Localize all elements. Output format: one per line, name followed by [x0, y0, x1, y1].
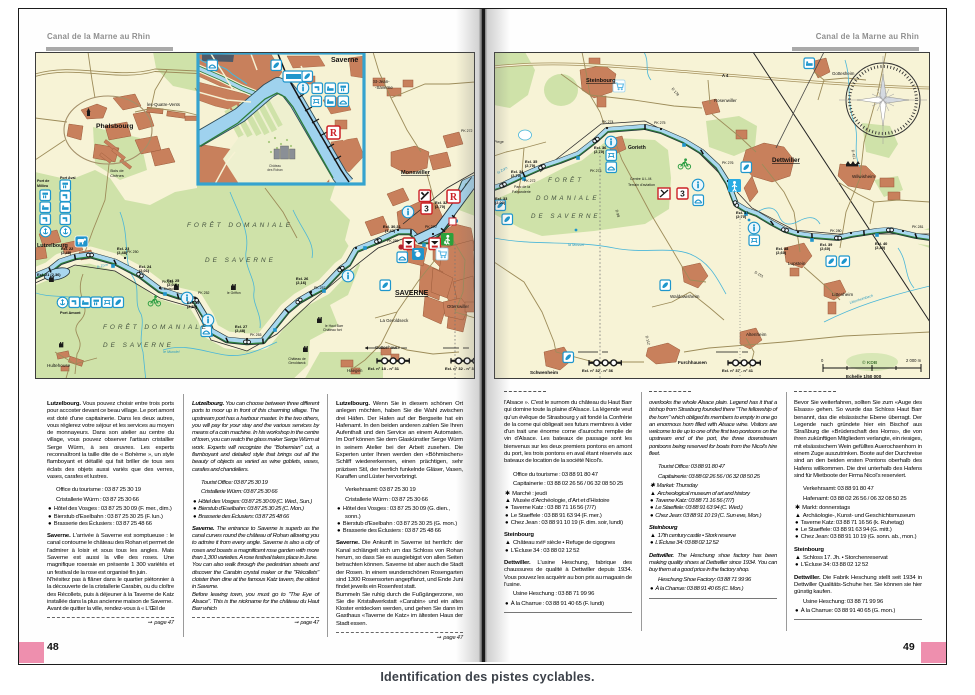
svg-text:Port Aval: Port Aval: [60, 176, 76, 180]
svg-text:Parc de la: Parc de la: [514, 185, 530, 189]
svg-text:D 151: D 151: [754, 270, 764, 278]
svg-text:(2,40): (2,40): [875, 245, 886, 250]
svg-text:Monswiller: Monswiller: [401, 170, 431, 176]
svg-text:DOMANIALE: DOMANIALE: [536, 195, 599, 202]
svg-text:Dettwiller: Dettwiller: [772, 157, 800, 164]
svg-text:Steinbourg: Steinbourg: [586, 78, 616, 84]
svg-text:FORÊT DOMANIALE: FORÊT DOMANIALE: [103, 322, 209, 331]
svg-text:(2,16): (2,16): [296, 280, 307, 285]
svg-text:FORÊT DOMANIALE: FORÊT DOMANIALE: [187, 220, 293, 229]
svg-text:Chênes: Chênes: [110, 173, 124, 178]
svg-text:la Mossel: la Mossel: [568, 243, 584, 247]
svg-text:le Griffon: le Griffon: [227, 291, 241, 295]
svg-text:(2,60): (2,60): [776, 250, 787, 255]
svg-text:(1,43): (1,43): [385, 228, 396, 233]
svg-text:D 112: D 112: [645, 335, 651, 345]
svg-text:DE SAVERNE: DE SAVERNE: [103, 342, 174, 349]
svg-text:PK 257: PK 257: [314, 286, 326, 290]
svg-text:Ecl. n° 37 - n° 41: Ecl. n° 37 - n° 41: [722, 368, 754, 373]
svg-text:DE SAVERNE: DE SAVERNE: [205, 257, 276, 264]
svg-text:Centre U.L.M.: Centre U.L.M.: [630, 177, 652, 181]
svg-text:Gottesheim: Gottesheim: [832, 71, 855, 76]
svg-text:le Mundel: le Mundel: [163, 350, 180, 354]
svg-text:(2,70): (2,70): [525, 163, 536, 168]
svg-text:PK 253: PK 253: [250, 333, 262, 337]
svg-text:A 4: A 4: [722, 73, 729, 78]
svg-text:(2,55): (2,55): [187, 304, 198, 309]
svg-text:PK 270: PK 270: [425, 225, 437, 229]
svg-text:Ecl. n° 18 - n° 31: Ecl. n° 18 - n° 31: [368, 366, 400, 371]
svg-text:(2,01): (2,01): [139, 268, 150, 273]
svg-text:Rosenwiller: Rosenwiller: [714, 98, 737, 103]
svg-text:Phalsbourg: Phalsbourg: [96, 123, 133, 130]
svg-text:PK 250: PK 250: [127, 250, 139, 254]
svg-text:Waldowisheim: Waldowisheim: [670, 294, 700, 299]
svg-text:Saverne: Saverne: [331, 57, 358, 64]
svg-text:PK 276: PK 276: [722, 161, 734, 165]
svg-text:0: 0: [821, 358, 824, 363]
svg-text:PK 273: PK 273: [590, 169, 602, 173]
svg-text:Hultehouse: Hultehouse: [47, 363, 71, 368]
svg-text:Port de: Port de: [37, 179, 49, 183]
svg-text:Faisanderie: Faisanderie: [512, 190, 531, 194]
svg-text:D 421: D 421: [851, 150, 857, 160]
svg-text:Ecl. 21 (2,36): Ecl. 21 (2,36): [37, 272, 61, 277]
svg-text:SAVERNE: SAVERNE: [395, 290, 429, 297]
svg-text:D 178: D 178: [671, 87, 680, 97]
svg-text:Lupstein: Lupstein: [788, 261, 806, 266]
svg-text:Port Amont: Port Amont: [60, 311, 81, 315]
svg-text:2 000 m: 2 000 m: [906, 358, 922, 363]
svg-text:Furchhausen: Furchhausen: [678, 360, 707, 365]
svg-text:des Rohan: des Rohan: [267, 168, 283, 172]
svg-text:les-Quatre-Vents: les-Quatre-Vents: [147, 102, 181, 107]
svg-text:PK 252: PK 252: [198, 291, 210, 295]
svg-text:(2,48): (2,48): [61, 250, 72, 255]
svg-text:Schwenheim: Schwenheim: [530, 370, 558, 375]
svg-text:PK 274: PK 274: [602, 120, 614, 124]
svg-text:La Geroldseck: La Geroldseck: [380, 318, 409, 323]
svg-text:(2,70): (2,70): [736, 214, 747, 219]
svg-text:-Saverne: -Saverne: [375, 85, 393, 90]
svg-text:Terrain d'aviation: Terrain d'aviation: [628, 183, 655, 187]
svg-text:Gottenhouse: Gottenhouse: [375, 345, 401, 350]
svg-text:© KDB: © KDB: [862, 359, 878, 366]
svg-text:St-Jean-: St-Jean-: [373, 79, 390, 84]
svg-text:(2,48): (2,48): [235, 328, 246, 333]
svg-text:Wilwisheim: Wilwisheim: [852, 174, 875, 179]
svg-text:Haegen: Haegen: [347, 368, 363, 373]
svg-text:Geroldseck: Geroldseck: [288, 361, 305, 365]
svg-text:Ecl. n° 32 - n° 36: Ecl. n° 32 - n° 36: [582, 368, 614, 373]
svg-text:PK 272: PK 272: [524, 179, 536, 183]
svg-text:Littenheim: Littenheim: [832, 292, 853, 297]
svg-text:DE SAVERNE: DE SAVERNE: [531, 213, 601, 220]
svg-text:(2,70): (2,70): [435, 204, 446, 209]
svg-text:Gorieth: Gorieth: [628, 145, 646, 151]
svg-text:PK 251: PK 251: [162, 280, 174, 284]
svg-text:PK 259: PK 259: [387, 239, 399, 243]
svg-text:PK 281: PK 281: [912, 225, 924, 229]
svg-text:(2,70): (2,70): [594, 149, 605, 154]
svg-text:PK 280: PK 280: [830, 229, 842, 233]
svg-text:Château fort: Château fort: [323, 328, 342, 332]
svg-text:(2,60): (2,60): [820, 246, 831, 251]
svg-text:Altenheim: Altenheim: [746, 332, 767, 337]
svg-text:Millieu: Millieu: [37, 184, 48, 188]
svg-text:FORÊT: FORÊT: [548, 176, 584, 184]
svg-text:PK 275: PK 275: [654, 121, 666, 125]
svg-text:(2,70): (2,70): [511, 173, 522, 178]
svg-text:le Brotsch: le Brotsch: [160, 287, 175, 291]
